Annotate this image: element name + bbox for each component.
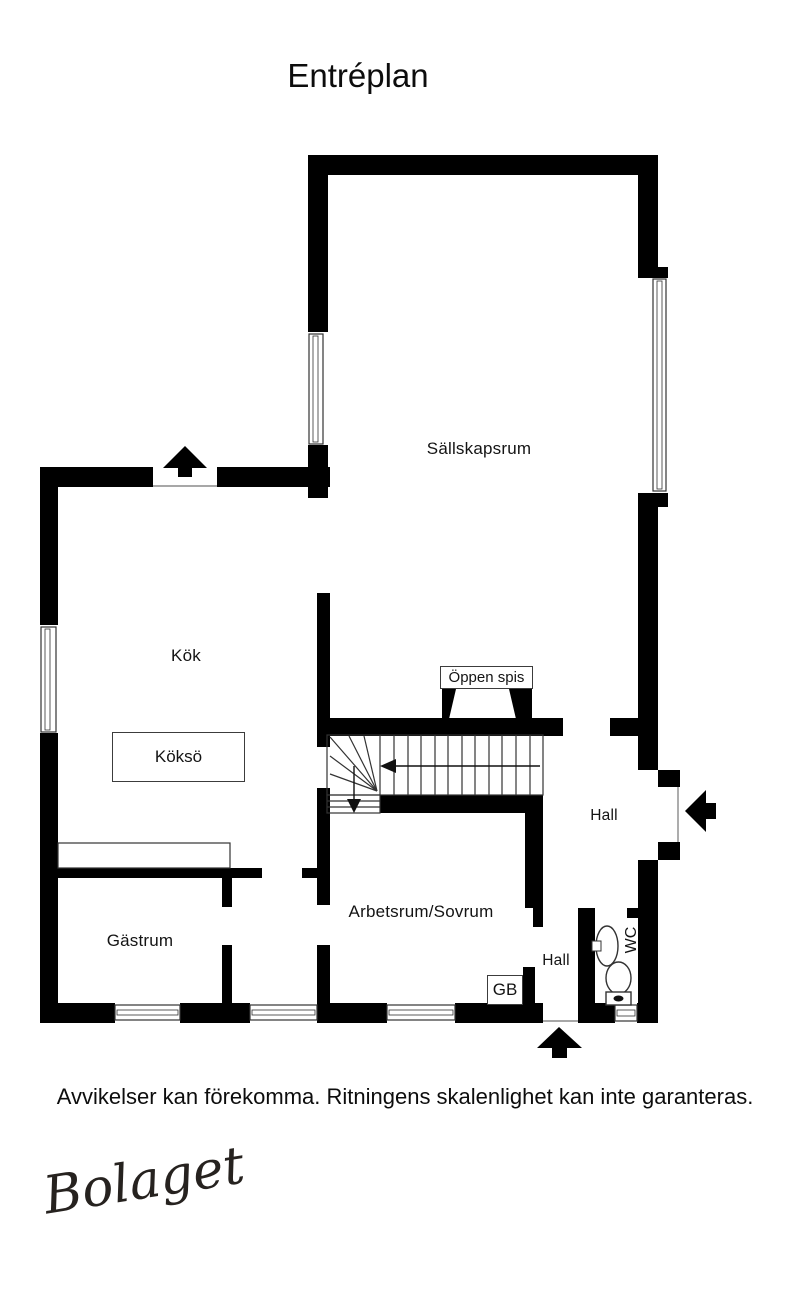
- sink-icon: [592, 926, 618, 966]
- entrance-arrow-top: [163, 446, 207, 477]
- kitchen-island-label: Köksö: [155, 747, 202, 767]
- floor-plan-page: Entréplan Sällskapsrum Kök Köksö Öppen s…: [0, 0, 800, 1299]
- kitchen-counter: [58, 843, 230, 868]
- room-label-kok: Kök: [171, 646, 201, 666]
- entrance-arrow-bottom: [537, 1027, 582, 1058]
- room-label-gastrum: Gästrum: [107, 931, 174, 951]
- room-label-hall-lower: Hall: [542, 952, 570, 970]
- wardrobe-label: GB: [493, 980, 518, 1000]
- fireplace-box: Öppen spis: [440, 666, 533, 689]
- page-title: Entréplan: [287, 57, 428, 95]
- fireplace-label: Öppen spis: [449, 669, 525, 686]
- room-label-sallskapsrum: Sällskapsrum: [427, 439, 531, 459]
- room-label-wc: WC: [623, 927, 641, 954]
- room-label-arbetsrum-sovrum: Arbetsrum/Sovrum: [349, 902, 494, 922]
- walls: [40, 155, 680, 1023]
- window-sallskapsrum-right: [653, 279, 666, 491]
- window-wc: [615, 1005, 637, 1021]
- window-bottom-1: [115, 1005, 180, 1020]
- window-bottom-3: [387, 1005, 455, 1020]
- wardrobe-box: GB: [487, 975, 523, 1005]
- room-label-hall-upper: Hall: [590, 807, 618, 825]
- entrance-arrow-right: [685, 790, 716, 832]
- fireplace-icon: [442, 689, 532, 719]
- window-kok-left: [41, 627, 56, 732]
- window-bottom-2: [250, 1005, 317, 1020]
- kitchen-island-box: Köksö: [112, 732, 245, 782]
- toilet-icon: [606, 962, 631, 1005]
- disclaimer-text: Avvikelser kan förekomma. Ritningens ska…: [57, 1084, 754, 1110]
- window-sallskapsrum-left: [309, 334, 323, 444]
